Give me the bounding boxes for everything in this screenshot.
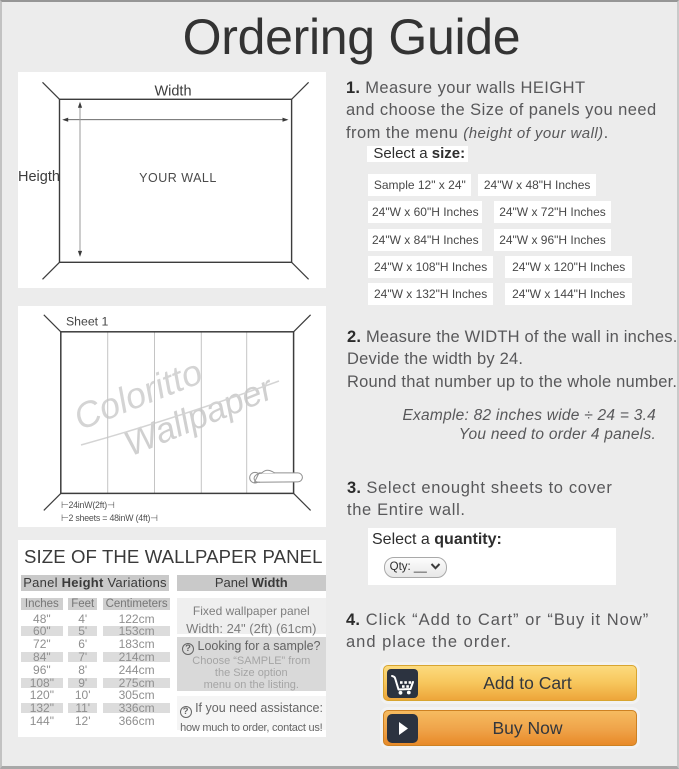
svg-text:⊢24inW(2ft)⊣: ⊢24inW(2ft)⊣	[61, 500, 115, 510]
svg-text:Width: Width	[154, 83, 191, 99]
svg-text:Sheet 1: Sheet 1	[66, 314, 109, 328]
svg-text:YOUR WALL: YOUR WALL	[139, 171, 217, 185]
svg-text:⊢2 sheets = 48inW (4ft)⊣: ⊢2 sheets = 48inW (4ft)⊣	[61, 513, 158, 523]
